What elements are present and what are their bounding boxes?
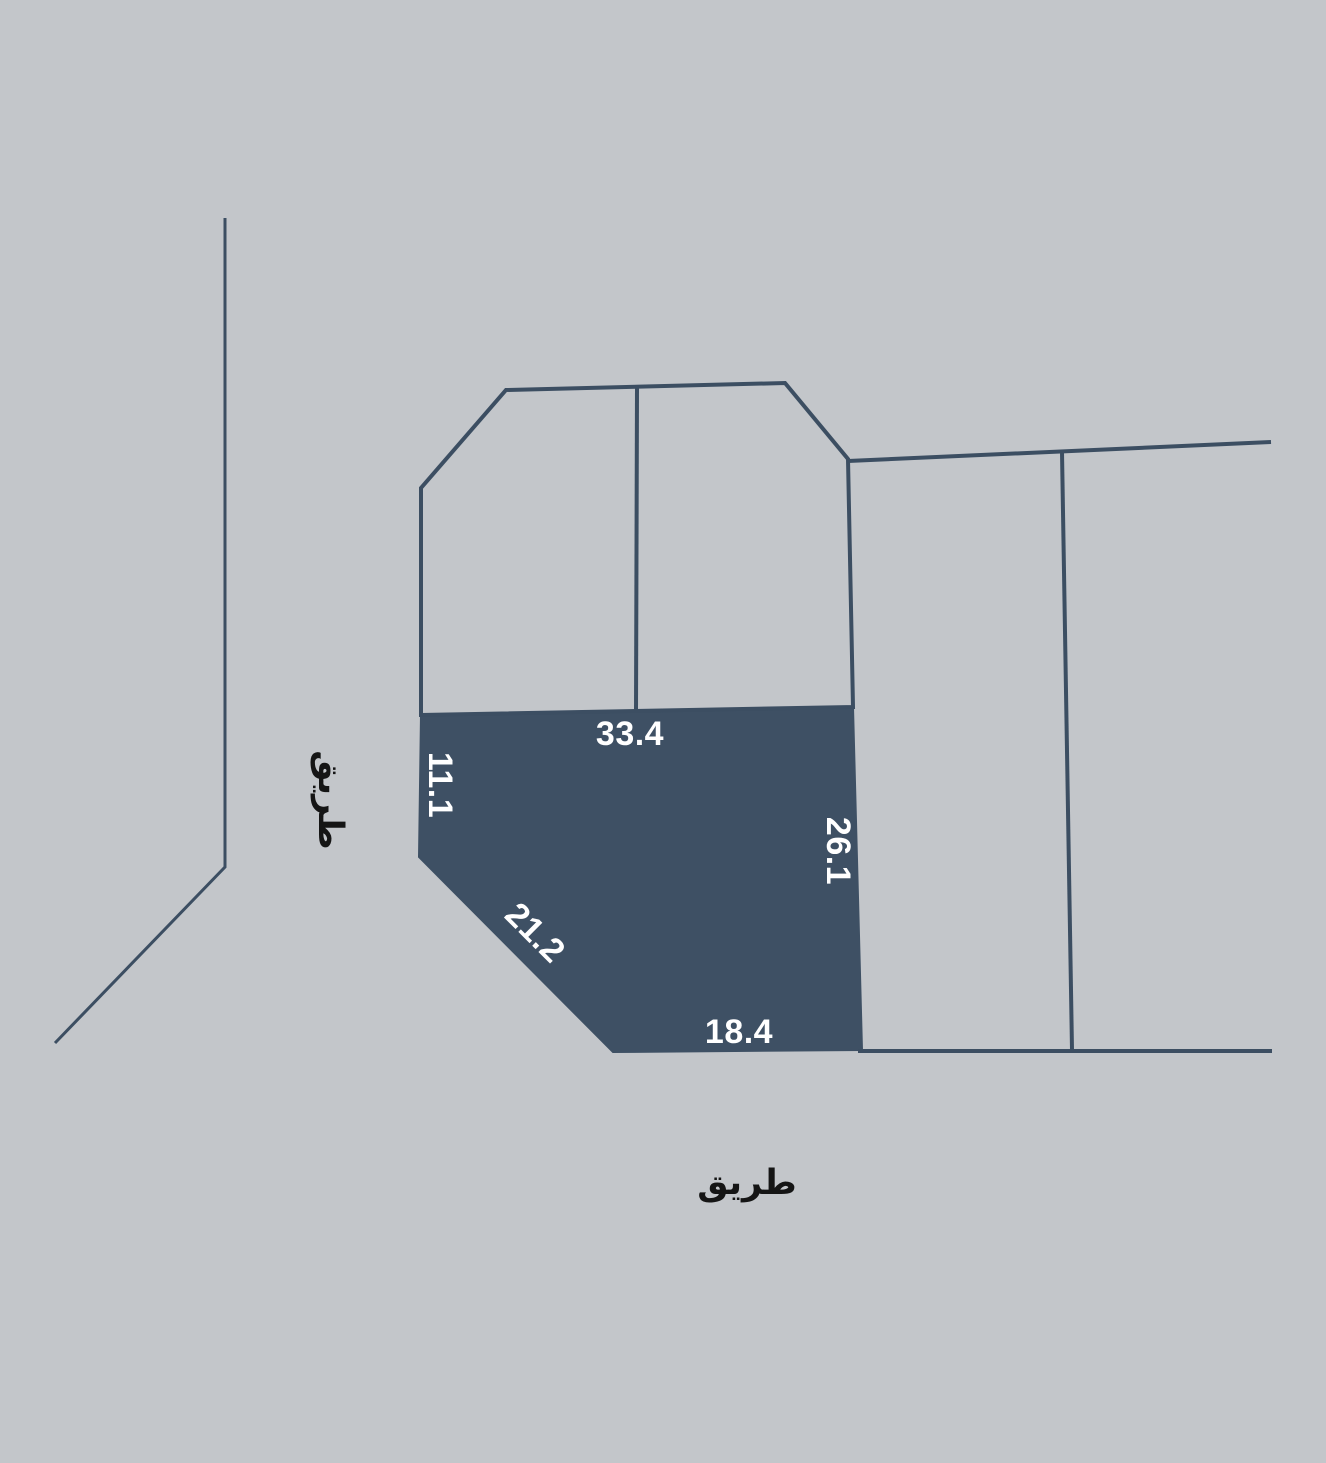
selected-plot-polygon[interactable]	[419, 707, 862, 1052]
right-block-divider	[1062, 452, 1072, 1050]
dimension-right: 26.1	[819, 817, 857, 885]
parcel-map-canvas: 33.411.126.121.218.4طريقطريق	[0, 0, 1326, 1463]
dimension-top: 33.4	[596, 715, 664, 753]
road-label-bottom: طريق	[697, 1163, 796, 1203]
road-boundary-left	[55, 218, 225, 1043]
upper-block-divider	[636, 388, 637, 712]
dimension-left: 11.1	[421, 752, 459, 818]
road-label-left: طريق	[310, 750, 350, 849]
right-block-top-boundary	[848, 442, 1271, 461]
parcel-map-view: 33.411.126.121.218.4طريقطريق	[0, 0, 1326, 1463]
dimension-bottom: 18.4	[705, 1013, 773, 1051]
